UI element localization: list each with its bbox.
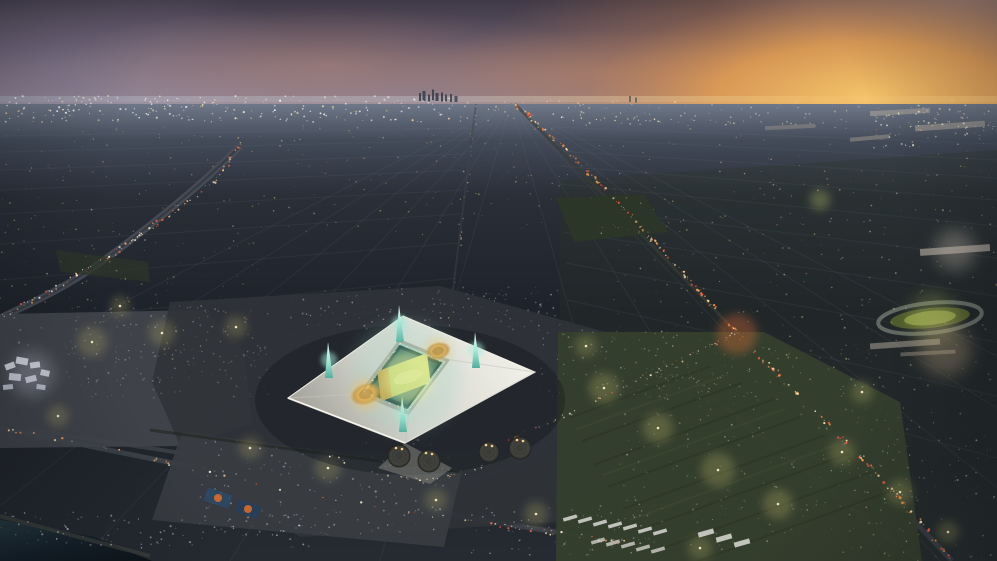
vignette-overlay [0, 0, 997, 561]
scene-canvas [0, 0, 997, 561]
aerial-stadium-photograph [0, 0, 997, 561]
